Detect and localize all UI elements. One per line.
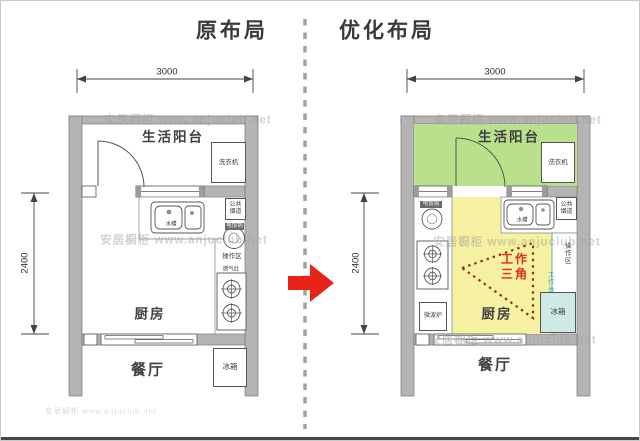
original-dimension-lines <box>21 69 253 334</box>
floorplan-comparison-image: 原布局 3000 2400 安居橱柜 www.anjuclub.net 生活阳台… <box>0 0 640 441</box>
work-triangle-label-2: 三角 <box>501 268 529 280</box>
original-flue-label-2: 烟道 <box>229 209 241 216</box>
original-public-flue: 公共 烟道 <box>225 198 246 220</box>
original-plan-title: 原布局 <box>196 21 268 42</box>
optimized-work-line-label: 工作台 <box>546 271 553 294</box>
original-sink-label: 水槽 <box>165 222 176 228</box>
optimized-balcony-door-arc <box>456 138 505 187</box>
original-washer-label: 洗衣机 <box>219 159 239 166</box>
floorplan-graphics <box>1 1 640 441</box>
optimized-microwave: 微波炉 <box>419 302 447 331</box>
original-op-zone-label: 操作区 <box>222 254 242 261</box>
optimized-fridge: 冰箱 <box>540 292 576 333</box>
work-triangle-label-1: 工作 <box>501 253 529 265</box>
original-rice-cooker-label: 电饭锅 <box>226 224 243 230</box>
optimized-fridge-label: 冰箱 <box>551 308 566 317</box>
original-balcony-door-arc <box>98 141 144 187</box>
optimized-washer-label: 洗衣机 <box>548 159 568 166</box>
optimized-flue-label-1: 公共 <box>560 202 572 209</box>
original-gas-stove <box>217 273 246 330</box>
optimized-dining-label: 餐厅 <box>478 358 512 373</box>
optimized-rice-cooker <box>422 209 442 229</box>
original-fridge-label: 冰箱 <box>223 363 238 372</box>
original-rice-cooker-ribbon: 电饭锅 <box>225 223 244 230</box>
transform-arrow-icon <box>288 264 334 302</box>
original-sink <box>151 202 204 233</box>
optimized-width-dimension: 3000 <box>484 67 505 77</box>
watermark-text: 安居橱柜 www.anjuclub.net <box>104 115 272 127</box>
optimized-microwave-label: 微波炉 <box>424 313 442 320</box>
optimized-balcony-windows <box>414 186 547 197</box>
original-height-dimension: 2400 <box>20 252 30 273</box>
optimized-flue-label-2: 烟道 <box>560 209 572 216</box>
optimized-rice-cooker-ribbon: 电饭锅 <box>420 201 442 208</box>
optimized-height-dimension: 2400 <box>351 252 361 273</box>
optimized-rice-cooker-label: 电饭锅 <box>423 202 440 208</box>
original-fridge: 冰箱 <box>213 348 247 387</box>
optimized-sink <box>504 200 554 229</box>
watermark-text: 安居橱柜 www.anjuclub.net <box>433 237 601 249</box>
watermark-text: 安居橱柜 www.anjuclub.net <box>429 335 597 347</box>
original-dining-label: 餐厅 <box>131 363 165 378</box>
optimized-washing-machine: 洗衣机 <box>541 142 575 183</box>
original-kitchen-label: 厨房 <box>135 307 166 321</box>
watermark-text: 安居橱柜 www.anjuclub.net <box>100 235 268 247</box>
optimized-balcony-label: 生活阳台 <box>478 130 540 144</box>
original-balcony-label: 生活阳台 <box>142 130 204 144</box>
original-flue-label-1: 公共 <box>229 202 241 209</box>
optimized-plan-title: 优化布局 <box>339 21 435 42</box>
original-balcony-window <box>82 186 204 197</box>
original-stove-label: 燃气灶 <box>223 267 240 273</box>
original-bottom-slider-door <box>84 334 197 345</box>
optimized-public-flue: 公共 烟道 <box>556 197 577 220</box>
optimized-kitchen-label: 厨房 <box>482 307 513 321</box>
original-washing-machine: 洗衣机 <box>211 142 246 183</box>
original-width-dimension: 3000 <box>156 67 177 77</box>
optimized-sink-label: 水槽 <box>516 218 527 224</box>
footer-watermark-text: 安居橱柜 www.anjuclub.net <box>45 407 156 415</box>
watermark-text: 安居橱柜 www.anjuclub.net <box>434 115 602 127</box>
bottom-border-strip <box>1 437 640 441</box>
